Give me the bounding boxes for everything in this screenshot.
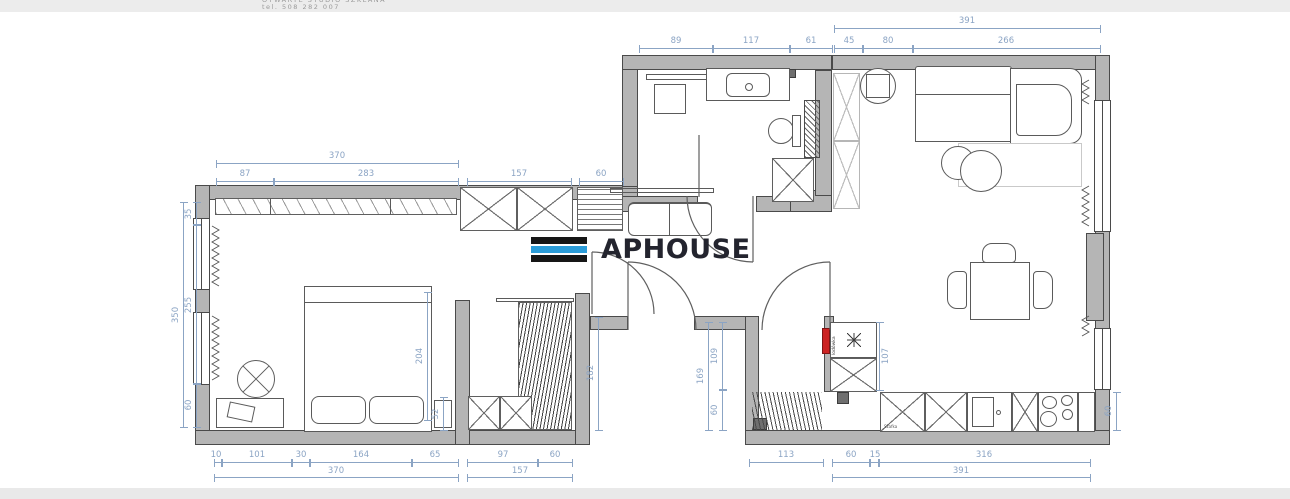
dim-line xyxy=(217,163,458,164)
wall-segment xyxy=(622,55,638,187)
dim-label: 113 xyxy=(778,450,794,460)
sofa-seat xyxy=(915,94,1012,142)
bedroom-top-cabinet xyxy=(215,198,457,215)
dim-line xyxy=(913,48,1100,49)
dim-label: 164 xyxy=(353,450,369,460)
dim-label: 15 xyxy=(870,450,881,460)
dim-label: 60 xyxy=(710,405,720,416)
wall-segment xyxy=(590,316,628,330)
dim-line xyxy=(468,462,538,463)
dim-line xyxy=(750,462,823,463)
dim-label: 30 xyxy=(296,450,307,460)
dim-line xyxy=(708,323,709,430)
corridor-cabinet xyxy=(500,396,532,430)
dim-label: 157 xyxy=(511,169,527,179)
dim-line xyxy=(427,293,428,420)
aphouse-watermark: APHOUSE xyxy=(531,236,751,263)
logo-text: APHOUSE xyxy=(601,236,751,263)
balcony-door-leaf xyxy=(1086,233,1104,321)
dim-line xyxy=(196,225,197,384)
dim-label: 10 xyxy=(211,450,222,460)
dining-chair xyxy=(1033,271,1053,309)
dim-label: 97 xyxy=(498,450,509,460)
shoe-cabinet xyxy=(577,187,623,231)
corridor-cabinet xyxy=(468,396,500,430)
dim-label: 266 xyxy=(998,36,1014,46)
logo-bar-top xyxy=(531,237,587,244)
dim-label: 60 xyxy=(1104,406,1114,417)
floor-plan-screenshot: OTWARTE STUDIO SZKLANA tel. 508 282 007 xyxy=(0,0,1290,499)
sofa-backrest xyxy=(915,66,1012,96)
dim-label: 107 xyxy=(881,348,891,364)
dim-label: 60 xyxy=(596,169,607,179)
doormat xyxy=(752,392,822,430)
kitchen-cabinet xyxy=(1078,392,1095,432)
dim-line xyxy=(713,48,790,49)
dim-line xyxy=(443,398,444,430)
dim-label: 169 xyxy=(696,368,706,384)
dining-chair xyxy=(947,271,967,309)
phone-text: tel. 508 282 007 xyxy=(262,3,340,11)
burner xyxy=(1061,395,1073,406)
toilet-tank xyxy=(792,115,801,147)
dim-line xyxy=(310,462,412,463)
dim-line xyxy=(790,48,832,49)
kitchen-cabinet xyxy=(1012,392,1038,432)
dim-label: 87 xyxy=(240,169,251,179)
tall-cabinet xyxy=(833,73,860,141)
burner xyxy=(1042,396,1057,409)
dim-label: 391 xyxy=(959,16,975,26)
dim-line xyxy=(468,181,571,182)
snowflake-icon xyxy=(847,333,861,347)
burner xyxy=(1040,411,1057,427)
dim-label: 316 xyxy=(976,450,992,460)
coffee-table xyxy=(960,150,1002,192)
dim-line xyxy=(580,181,623,182)
kitchen-faucet xyxy=(996,410,1001,415)
dim-line xyxy=(196,384,197,427)
dim-label: 370 xyxy=(328,466,344,476)
dim-label: 45 xyxy=(844,36,855,46)
kitchen-sink xyxy=(972,397,994,427)
chaise-cushion xyxy=(1016,84,1072,136)
dim-label: 370 xyxy=(329,151,345,161)
window xyxy=(1094,100,1111,232)
footer-band xyxy=(0,488,1290,499)
dim-label: 283 xyxy=(358,169,374,179)
dim-label: 80 xyxy=(883,36,894,46)
dim-line xyxy=(412,462,458,463)
dim-line xyxy=(833,477,1090,478)
console-table xyxy=(610,188,714,193)
wardrobe-cabinet xyxy=(517,187,573,231)
dim-label: 204 xyxy=(415,348,425,364)
header-band: OTWARTE STUDIO SZKLANA tel. 508 282 007 xyxy=(0,0,1290,12)
dim-label: 35 xyxy=(184,209,194,220)
dim-line xyxy=(598,318,599,430)
dim-line xyxy=(274,181,458,182)
bed-fold-line xyxy=(304,302,432,303)
cabinet-divider xyxy=(390,198,391,215)
dim-label: 182 xyxy=(586,365,596,381)
logo-bar-middle xyxy=(531,246,587,253)
dim-label: 350 xyxy=(171,307,181,323)
dim-line xyxy=(863,48,913,49)
dining-table xyxy=(970,262,1030,320)
side-table-top xyxy=(866,74,890,98)
dim-line xyxy=(835,28,1100,29)
wall-segment xyxy=(745,430,1110,445)
dim-line xyxy=(183,203,184,427)
plumbing-shaft xyxy=(804,100,820,158)
dim-label: 109 xyxy=(710,348,720,364)
logo-bars-icon xyxy=(531,237,587,262)
dim-label: 101 xyxy=(249,450,265,460)
wall-pier xyxy=(837,392,849,404)
pillow xyxy=(369,396,424,424)
bench-divider xyxy=(669,203,670,235)
dim-label: 391 xyxy=(953,466,969,476)
pillow xyxy=(311,396,366,424)
dim-label: 60 xyxy=(184,400,194,411)
wall-segment xyxy=(195,430,590,445)
window xyxy=(1094,328,1111,390)
bathroom-shelf xyxy=(646,74,710,80)
dim-line xyxy=(222,462,292,463)
dim-label: 255 xyxy=(184,297,194,313)
faucet xyxy=(745,83,753,91)
heating-riser-marker xyxy=(822,328,830,354)
cabinet-divider xyxy=(270,198,271,215)
dim-label: 117 xyxy=(743,36,759,46)
dim-label: 60 xyxy=(550,450,561,460)
fridge-base-cabinet xyxy=(830,358,877,392)
dim-line xyxy=(468,477,572,478)
kitchen-cabinet xyxy=(925,392,967,432)
dim-line xyxy=(722,390,723,430)
dim-line xyxy=(722,323,723,390)
dim-label: 52 xyxy=(431,409,441,420)
fridge-label: lodówka xyxy=(832,325,837,355)
dim-label: 89 xyxy=(671,36,682,46)
toilet-bowl xyxy=(768,118,794,144)
dim-line xyxy=(879,462,1090,463)
logo-bar-bottom xyxy=(531,255,587,262)
dim-line xyxy=(215,477,458,478)
kitchen-cabinet-label: Szafka xyxy=(884,424,897,429)
dim-line xyxy=(640,48,713,49)
dim-label: 60 xyxy=(846,450,857,460)
tall-cabinet xyxy=(833,141,860,209)
shower-seat xyxy=(654,84,686,114)
washing-machine xyxy=(772,158,814,202)
dim-label: 65 xyxy=(430,450,441,460)
wardrobe-cabinet xyxy=(460,187,517,231)
dim-label: 157 xyxy=(512,466,528,476)
dim-line xyxy=(879,323,880,390)
dim-line xyxy=(833,462,870,463)
dim-line xyxy=(217,181,274,182)
entry-bench xyxy=(628,202,712,236)
dim-line xyxy=(1116,393,1117,430)
dim-line xyxy=(292,462,310,463)
burner xyxy=(1062,409,1073,420)
desk-chair xyxy=(237,360,275,398)
dim-line xyxy=(538,462,572,463)
dim-label: 61 xyxy=(806,36,817,46)
dim-line xyxy=(196,203,197,225)
dining-chair xyxy=(982,243,1016,263)
dim-line xyxy=(835,48,863,49)
